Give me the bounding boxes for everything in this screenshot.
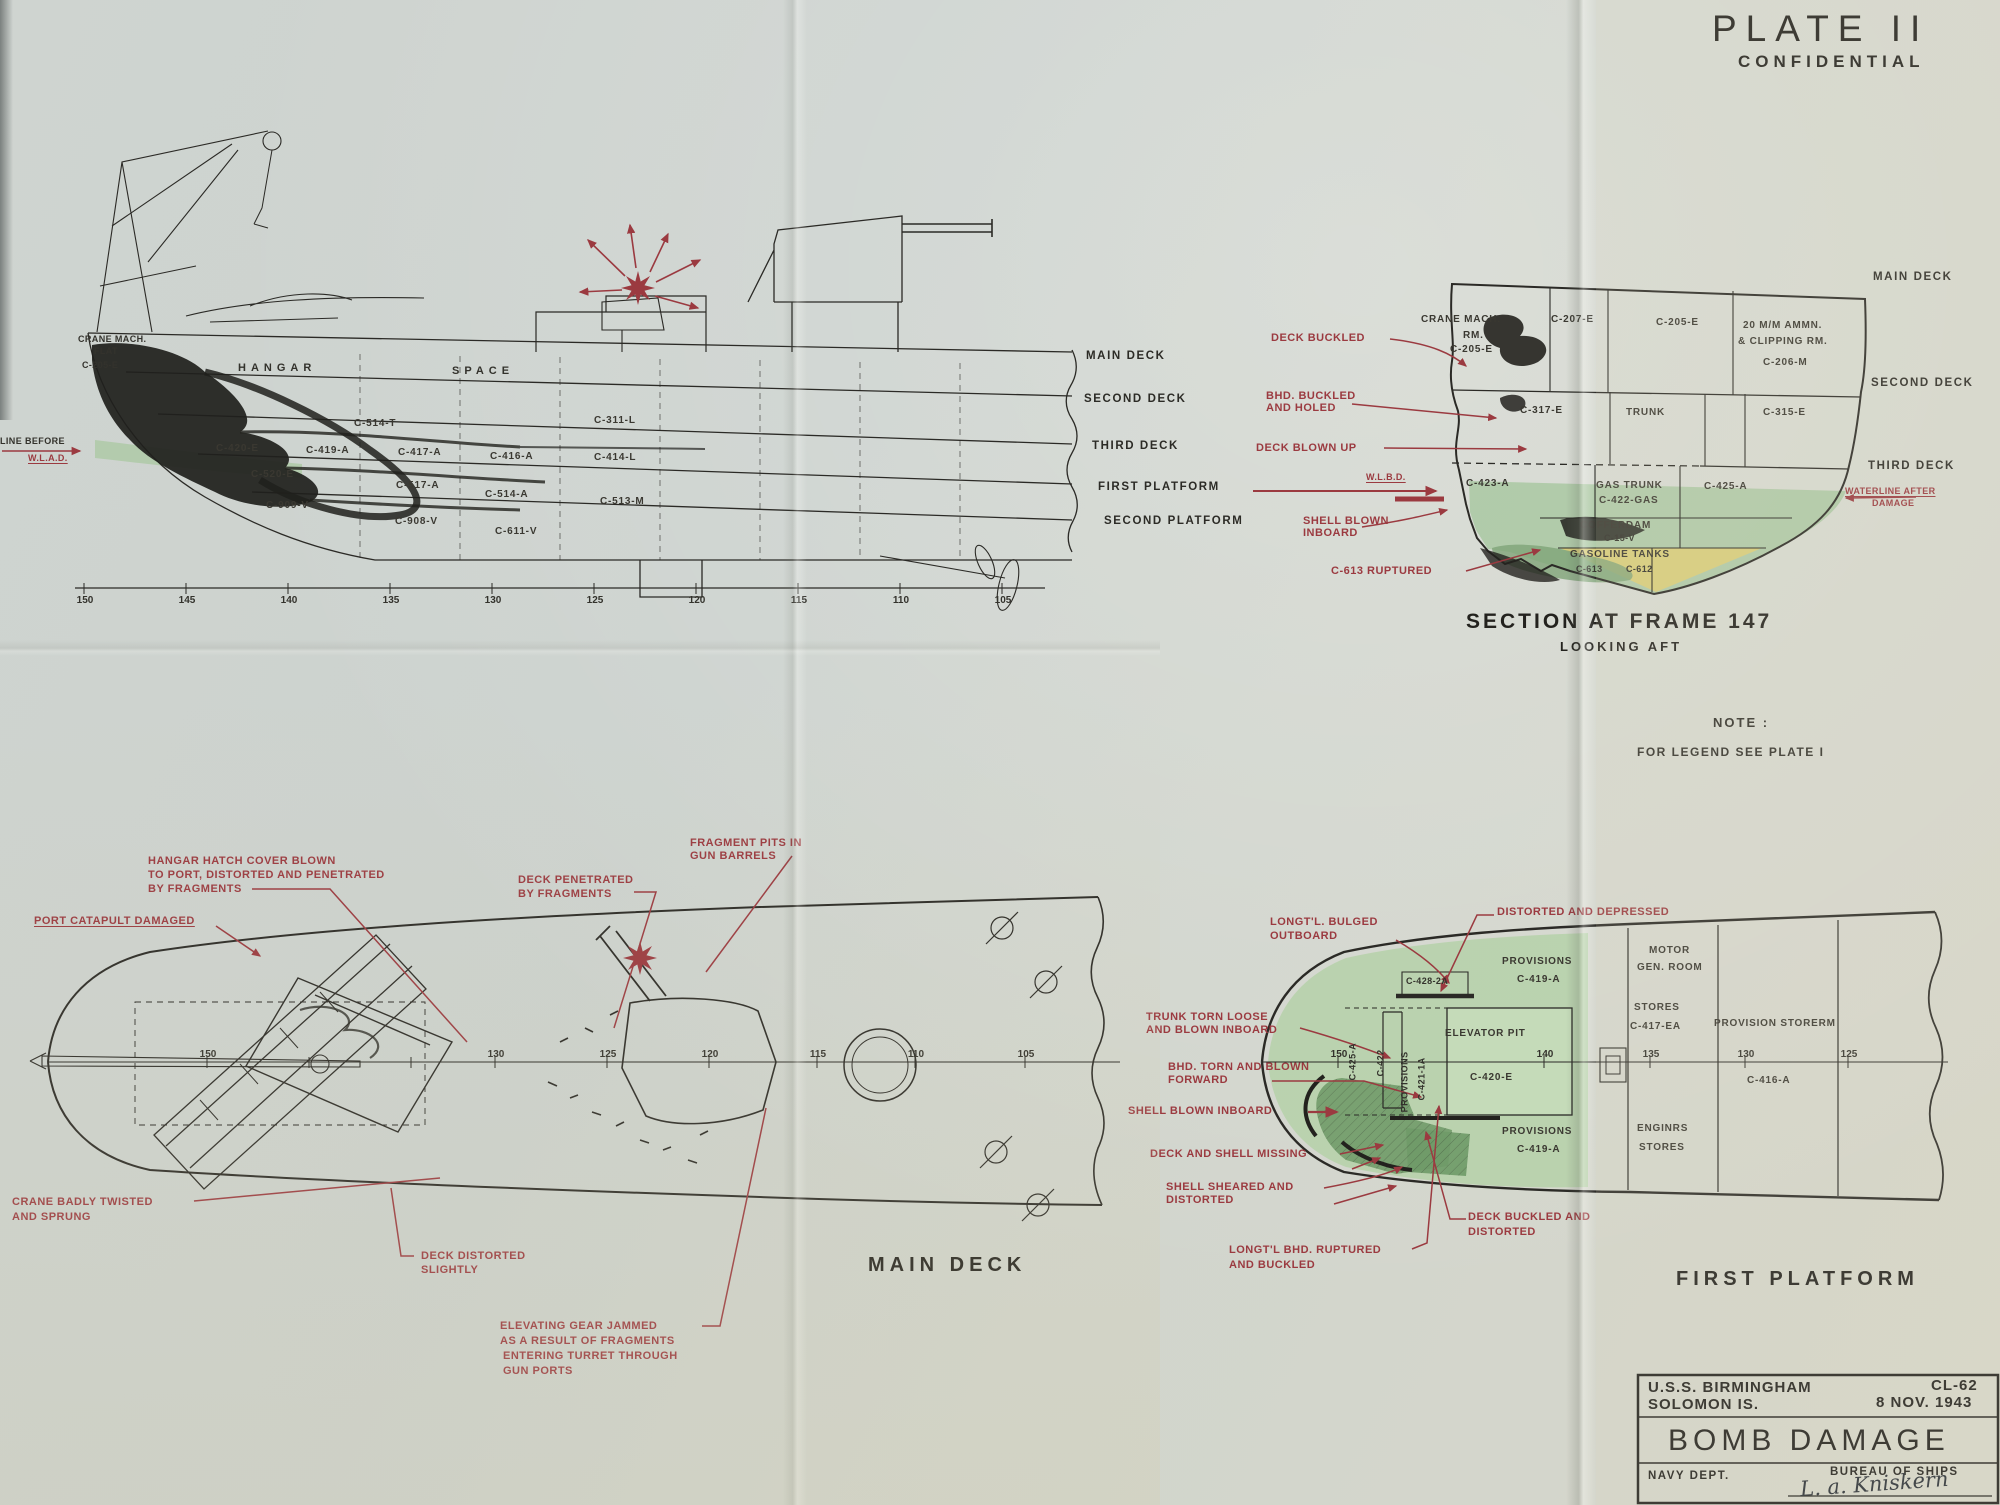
profile-compartment-c517a: C-517-A — [396, 480, 439, 492]
md-frame-120: 120 — [697, 1049, 723, 1061]
fp-ann-deck-buckled-line2: DISTORTED — [1468, 1226, 1536, 1239]
section-compartment-c425a: C-425-A — [1704, 481, 1747, 493]
section-ann-waterline-after-line2: DAMAGE — [1872, 498, 1914, 508]
note-body: FOR LEGEND SEE PLATE I — [1637, 746, 1824, 760]
profile-crane-flat-label: FLAT — [94, 346, 118, 356]
section-ammo-line2: & CLIPPING RM. — [1738, 336, 1828, 348]
titleblock-place: SOLOMON IS. — [1648, 1396, 1759, 1413]
profile-space-label: SPACE — [452, 365, 514, 378]
fp-compartment-c416a: C-416-A — [1747, 1075, 1790, 1087]
profile-deck-main: MAIN DECK — [1086, 350, 1166, 363]
md-frame-130: 130 — [483, 1049, 509, 1061]
section-title: SECTION AT FRAME 147 — [1466, 610, 1772, 634]
profile-frame-120: 120 — [684, 595, 710, 607]
section-gas-trunk-line2: C-422-GAS — [1599, 495, 1658, 507]
profile-compartment-c416a: C-416-A — [490, 451, 533, 463]
note-heading: NOTE : — [1713, 716, 1769, 731]
fp-ann-depressed: DISTORTED AND DEPRESSED — [1497, 906, 1669, 919]
fp-ann-deck-missing: DECK AND SHELL MISSING — [1150, 1148, 1307, 1161]
fp-frame-150: 150 — [1326, 1049, 1352, 1061]
section-compartment-c207e: C-207-E — [1551, 314, 1594, 326]
md-frame-110: 110 — [903, 1049, 929, 1061]
fp-ann-sheared-line1: SHELL SHEARED AND — [1166, 1181, 1294, 1194]
fp-motor-line2: GEN. ROOM — [1637, 962, 1703, 974]
profile-hangar-label: HANGAR — [238, 362, 316, 375]
section-ann-deck-blown-up: DECK BLOWN UP — [1256, 442, 1357, 455]
md-ann-hatch-line2: TO PORT, DISTORTED AND PENETRATED — [148, 869, 385, 882]
profile-frame-140: 140 — [276, 595, 302, 607]
titleblock-hull-number: CL-62 — [1931, 1377, 1978, 1394]
section-deck-third: THIRD DECK — [1868, 460, 1955, 473]
md-ann-hatch-line3: BY FRAGMENTS — [148, 883, 242, 896]
profile-compartment-c514a: C-514-A — [485, 489, 528, 501]
titleblock-dept: NAVY DEPT. — [1648, 1470, 1730, 1483]
fp-motor-line1: MOTOR — [1649, 945, 1690, 957]
profile-frame-135: 135 — [378, 595, 404, 607]
md-frame-125: 125 — [595, 1049, 621, 1061]
md-frame-115: 115 — [805, 1049, 831, 1061]
section-compartment-c205e: C-205-E — [1656, 317, 1699, 329]
section-crane-rm-number: C-205-E — [1450, 344, 1493, 356]
md-ann-hatch-line1: HANGAR HATCH COVER BLOWN — [148, 855, 336, 868]
fp-engineers-stores-line2: STORES — [1639, 1142, 1685, 1154]
profile-deck-second: SECOND DECK — [1084, 393, 1187, 406]
md-ann-distorted-line2: SLIGHTLY — [421, 1264, 478, 1277]
md-ann-fragment-pits-line1: FRAGMENT PITS IN — [690, 837, 802, 850]
section-subtitle: LOOKING AFT — [1560, 640, 1682, 655]
md-ann-elevating-line2: AS A RESULT OF FRAGMENTS — [500, 1335, 675, 1348]
md-ann-deck-penetrated-line2: BY FRAGMENTS — [518, 888, 612, 901]
fp-provisions-vertical: PROVISIONS — [1400, 1051, 1410, 1112]
md-ann-deck-penetrated-line1: DECK PENETRATED — [518, 874, 633, 887]
fp-ann-bulged-line1: LONGT'L. BULGED — [1270, 916, 1378, 929]
fp-provisions-top-line2: C-419-A — [1517, 974, 1560, 986]
profile-frame-130: 130 — [480, 595, 506, 607]
fp-stores-line1: STORES — [1634, 1002, 1680, 1014]
md-ann-crane-line1: CRANE BADLY TWISTED — [12, 1196, 153, 1209]
profile-compartment-c514t: C-514-T — [354, 418, 396, 430]
fp-provisions-bottom-line1: PROVISIONS — [1502, 1126, 1572, 1138]
section-ann-bhd-buckled-line1: BHD. BUCKLED — [1266, 390, 1356, 403]
section-ann-c613-ruptured: C-613 RUPTURED — [1331, 565, 1432, 578]
fp-elevator-pit: ELEVATOR PIT — [1445, 1028, 1526, 1040]
section-tank-c612: C-612 — [1626, 564, 1653, 574]
bomb-damage-plate: PLATE II CONFIDENTIAL CRANE MACH. FLAT C… — [0, 0, 2000, 1505]
fp-compartment-c428: C-428-2A — [1406, 976, 1448, 986]
md-ann-elevating-line1: ELEVATING GEAR JAMMED — [500, 1320, 657, 1333]
fp-ann-bhd-line1: BHD. TORN AND BLOWN — [1168, 1061, 1310, 1074]
md-frame-150: 150 — [195, 1049, 221, 1061]
md-ann-elevating-line3: ENTERING TURRET THROUGH — [503, 1350, 678, 1363]
section-trunk-label: TRUNK — [1626, 407, 1665, 419]
section-tank-c613: C-613 — [1576, 564, 1603, 574]
section-ann-shell-blown-line1: SHELL BLOWN — [1303, 515, 1389, 528]
profile-compartment-c205e: C-205-E — [82, 360, 118, 370]
profile-frame-115: 115 — [786, 595, 812, 607]
fp-provisions-top-line1: PROVISIONS — [1502, 956, 1572, 968]
section-cofferdam-label: COFFERDAM — [1580, 520, 1651, 532]
md-frame-105: 105 — [1013, 1049, 1039, 1061]
profile-compartment-c611v: C-611-V — [495, 526, 537, 538]
fp-stores-line2: C-417-EA — [1630, 1021, 1681, 1033]
md-ann-elevating-line4: GUN PORTS — [503, 1365, 573, 1378]
main-deck-plan — [30, 897, 1120, 1221]
fp-provisions-bottom-line2: C-419-A — [1517, 1144, 1560, 1156]
fp-compartment-c421-vertical: C-421-1A — [1417, 1057, 1427, 1100]
profile-frame-145: 145 — [174, 595, 200, 607]
fp-compartment-c422-vertical: C-422 — [1376, 1049, 1386, 1076]
section-ann-waterline-after-line1: WATERLINE AFTER — [1845, 486, 1936, 496]
md-ann-crane-line2: AND SPRUNG — [12, 1211, 91, 1224]
fp-ann-longl-bhd-line1: LONGT'L BHD. RUPTURED — [1229, 1244, 1381, 1257]
profile-deck-first-platform: FIRST PLATFORM — [1098, 481, 1220, 494]
profile-view — [75, 131, 1077, 612]
section-crane-rm-line2: RM. — [1463, 330, 1484, 342]
fp-frame-135: 135 — [1638, 1049, 1664, 1061]
profile-deck-third: THIRD DECK — [1092, 440, 1179, 453]
waterline-after-wlad-label: W.L.A.D. — [28, 453, 68, 463]
section-gasoline-tanks-label: GASOLINE TANKS — [1570, 549, 1670, 561]
fp-provision-storeroom: PROVISION STORERM — [1714, 1018, 1836, 1030]
section-crane-rm-line1: CRANE MACH. — [1421, 314, 1501, 326]
section-ammo-number: C-206-M — [1763, 357, 1808, 369]
section-gas-trunk-line1: GAS TRUNK — [1596, 480, 1663, 492]
fp-ann-trunk-line2: AND BLOWN INBOARD — [1146, 1024, 1277, 1037]
section-compartment-c423a: C-423-A — [1466, 478, 1509, 490]
section-cofferdam-number: C-15-V — [1604, 533, 1635, 543]
profile-compartment-c311l: C-311-L — [594, 415, 636, 427]
profile-frame-150: 150 — [72, 595, 98, 607]
profile-compartment-c414l: C-414-L — [594, 452, 636, 464]
md-ann-fragment-pits-line2: GUN BARRELS — [690, 850, 776, 863]
section-compartment-c315e: C-315-E — [1763, 407, 1806, 419]
profile-compartment-c908v: C-908-V — [395, 516, 438, 528]
profile-frame-125: 125 — [582, 595, 608, 607]
fp-frame-130: 130 — [1733, 1049, 1759, 1061]
fp-engineers-stores-line1: ENGINRS — [1637, 1123, 1688, 1135]
profile-compartment-c513m: C-513-M — [600, 496, 645, 508]
fp-compartment-c420e: C-420-E — [1470, 1072, 1513, 1084]
section-ammo-line1: 20 M/M AMMN. — [1743, 320, 1822, 332]
fp-ann-bhd-line2: FORWARD — [1168, 1074, 1228, 1087]
profile-compartment-c520e: C-520-E — [251, 469, 294, 481]
profile-compartment-c909v: C-909-V — [266, 500, 309, 512]
titleblock-title: BOMB DAMAGE — [1668, 1424, 1950, 1459]
section-ann-shell-blown-line2: INBOARD — [1303, 527, 1358, 540]
titleblock-date: 8 NOV. 1943 — [1876, 1394, 1972, 1411]
section-compartment-c317e: C-317-E — [1520, 405, 1563, 417]
profile-crane-mach-label: CRANE MACH. — [78, 334, 146, 344]
profile-frame-110: 110 — [888, 595, 914, 607]
fp-frame-125: 125 — [1836, 1049, 1862, 1061]
waterline-before-label: LINE BEFORE — [0, 436, 65, 446]
fp-ann-deck-buckled-line1: DECK BUCKLED AND — [1468, 1211, 1590, 1224]
fp-frame-140: 140 — [1532, 1049, 1558, 1061]
classification-label: CONFIDENTIAL — [1738, 52, 1925, 72]
section-deck-main: MAIN DECK — [1873, 271, 1953, 284]
profile-compartment-c417a: C-417-A — [398, 447, 441, 459]
main-deck-title: MAIN DECK — [868, 1254, 1026, 1277]
md-ann-distorted-line1: DECK DISTORTED — [421, 1250, 526, 1263]
first-platform-title: FIRST PLATFORM — [1676, 1268, 1919, 1291]
section-ann-deck-buckled: DECK BUCKLED — [1271, 332, 1365, 345]
fp-ann-sheared-line2: DISTORTED — [1166, 1194, 1234, 1207]
profile-frame-105: 105 — [990, 595, 1016, 607]
fp-ann-bulged-line2: OUTBOARD — [1270, 930, 1338, 943]
fp-ann-longl-bhd-line2: AND BUCKLED — [1229, 1259, 1315, 1272]
titleblock-ship-name: U.S.S. BIRMINGHAM — [1648, 1379, 1812, 1396]
section-ann-bhd-buckled-line2: AND HOLED — [1266, 402, 1336, 415]
profile-compartment-c420e: C-420-E — [216, 443, 259, 455]
md-ann-catapult: PORT CATAPULT DAMAGED — [34, 915, 195, 928]
plate-title: PLATE II — [1712, 8, 1929, 51]
fp-ann-shell-blown: SHELL BLOWN INBOARD — [1128, 1105, 1272, 1118]
section-deck-second: SECOND DECK — [1871, 377, 1974, 390]
profile-deck-second-platform: SECOND PLATFORM — [1104, 515, 1243, 528]
fp-ann-trunk-line1: TRUNK TORN LOOSE — [1146, 1011, 1268, 1024]
profile-compartment-c419a: C-419-A — [306, 445, 349, 457]
section-ann-wlbd: W.L.B.D. — [1366, 472, 1406, 482]
